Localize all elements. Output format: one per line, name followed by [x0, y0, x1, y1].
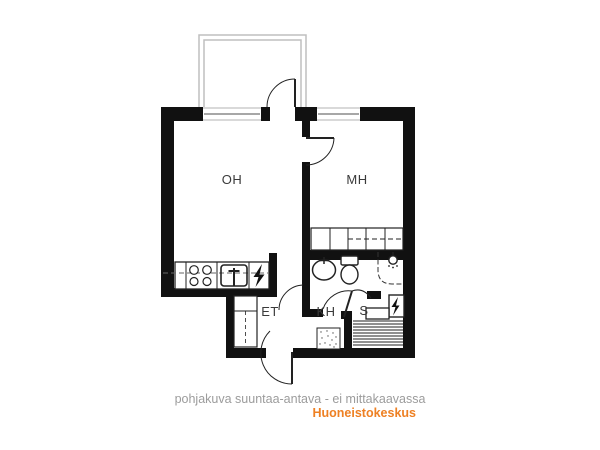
sauna-benches	[353, 321, 403, 345]
room-label-bedroom: MH	[346, 172, 367, 187]
brand-logo-text: Huoneistokeskus	[0, 406, 600, 420]
wall-segment	[293, 348, 415, 358]
disclaimer-text: pohjakuva suuntaa-antava - ei mittakaava…	[0, 392, 600, 406]
wall-segment	[302, 121, 310, 137]
room-label-living-room: OH	[222, 172, 243, 187]
sauna-step	[366, 308, 389, 319]
room-label-entrance-hall: ET	[261, 304, 279, 319]
hall-door	[279, 285, 303, 310]
room-label-bathroom: KH	[316, 304, 335, 319]
sauna-heater-icon	[389, 295, 404, 317]
wall-segment	[226, 348, 266, 358]
window-bedroom	[317, 107, 360, 121]
floor-plan-drawing: OH MH ET KH S	[0, 0, 600, 450]
room-label-sauna: S	[359, 303, 368, 318]
wall-segment	[261, 107, 270, 121]
floor-plan-page: OH MH ET KH S pohjakuva suuntaa-antava -…	[0, 0, 600, 450]
wall-segment	[302, 162, 310, 310]
balcony-door	[267, 79, 295, 107]
toilet-icon	[341, 256, 358, 284]
wall-segment	[161, 107, 174, 297]
window-living-room	[203, 107, 261, 121]
bedroom-door	[306, 138, 334, 165]
wall-segment	[226, 288, 234, 358]
bedroom-closets	[311, 228, 403, 250]
wall-segment	[403, 107, 415, 358]
bathroom-sink-icon	[313, 257, 336, 280]
wall-segment	[269, 253, 277, 297]
balcony-outline	[199, 35, 306, 108]
wall-segment	[295, 107, 317, 121]
wall-segment	[344, 311, 352, 348]
floor-drain-icon	[317, 328, 340, 349]
hall-closet	[234, 296, 257, 347]
